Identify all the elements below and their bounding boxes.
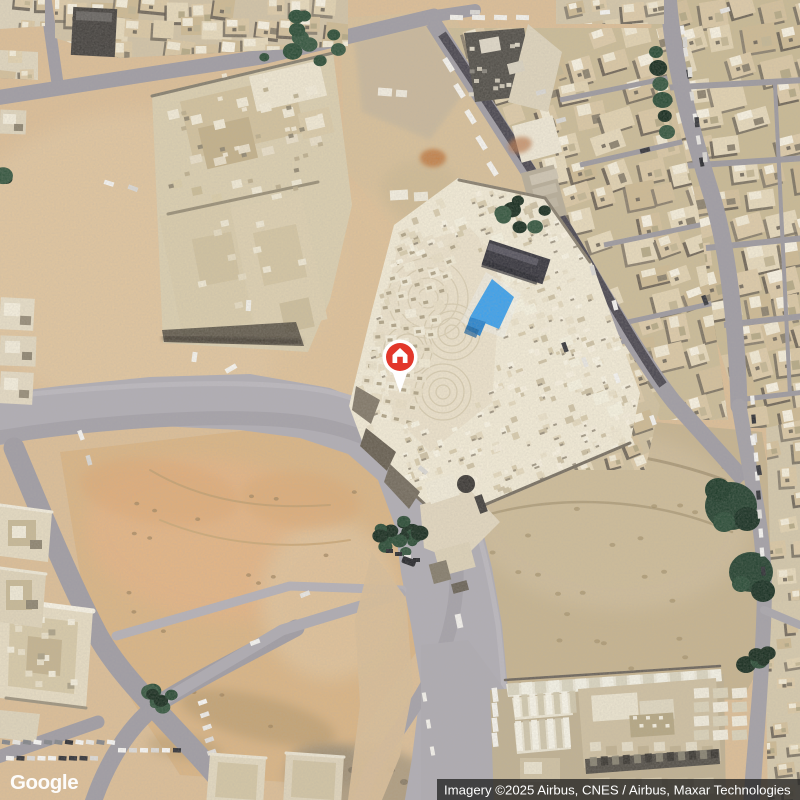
- svg-text:Imagery ©2025 Airbus, CNES / A: Imagery ©2025 Airbus, CNES / Airbus, Max…: [444, 783, 791, 798]
- svg-text:Google: Google: [10, 771, 78, 794]
